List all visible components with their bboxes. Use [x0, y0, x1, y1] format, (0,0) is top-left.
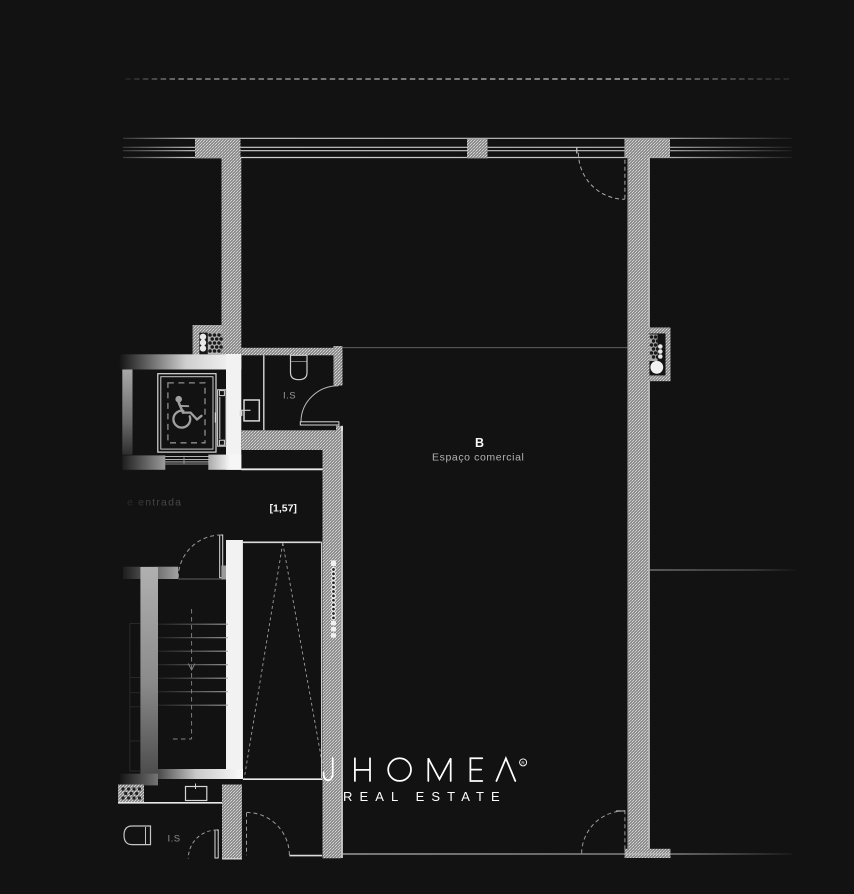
svg-text:I.S: I.S	[168, 834, 181, 845]
svg-text:[1,57]: [1,57]	[270, 503, 297, 515]
svg-text:Espaço comercial: Espaço comercial	[432, 452, 524, 464]
svg-text:B: B	[475, 436, 484, 450]
svg-text:e entrada: e entrada	[127, 497, 182, 509]
svg-text:I.S: I.S	[283, 391, 296, 402]
svg-text:REAL ESTATE: REAL ESTATE	[343, 789, 507, 804]
